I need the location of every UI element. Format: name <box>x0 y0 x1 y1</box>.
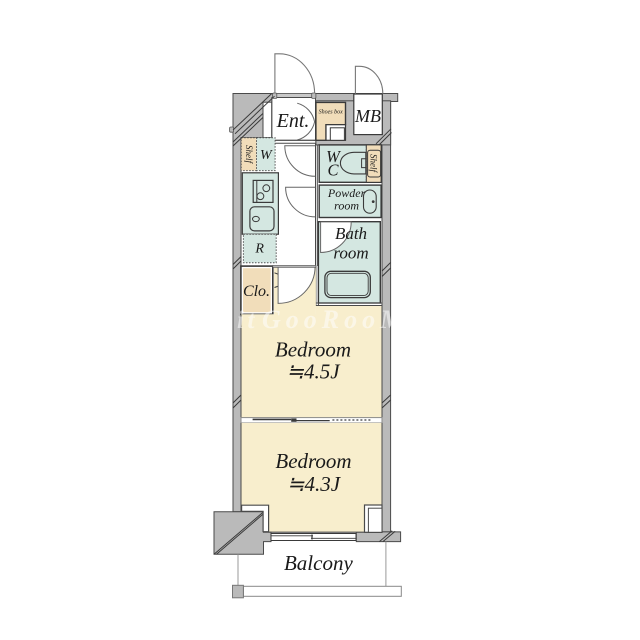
svg-text:GooRooM: GooRooM <box>262 305 408 334</box>
svg-text:Bedroom: Bedroom <box>275 338 351 362</box>
svg-text:Balcony: Balcony <box>284 551 353 575</box>
svg-text:Shoes box: Shoes box <box>319 110 343 116</box>
svg-text:Shelf: Shelf <box>244 145 254 164</box>
svg-text:≒4.3J: ≒4.3J <box>287 472 342 496</box>
svg-text:≒4.5J: ≒4.5J <box>286 360 341 384</box>
svg-text:room: room <box>333 244 368 263</box>
svg-text:Clo.: Clo. <box>243 283 270 300</box>
svg-text:MB: MB <box>354 106 381 126</box>
svg-text:room: room <box>334 199 359 213</box>
svg-text:Bedroom: Bedroom <box>275 449 351 473</box>
svg-text:R: R <box>254 242 264 257</box>
svg-text:C: C <box>327 161 339 180</box>
svg-text:Bath: Bath <box>335 224 367 243</box>
svg-text:it: it <box>237 307 258 334</box>
svg-text:Shelf: Shelf <box>369 154 379 173</box>
svg-text:W: W <box>260 148 273 163</box>
svg-text:Ent.: Ent. <box>276 110 310 132</box>
